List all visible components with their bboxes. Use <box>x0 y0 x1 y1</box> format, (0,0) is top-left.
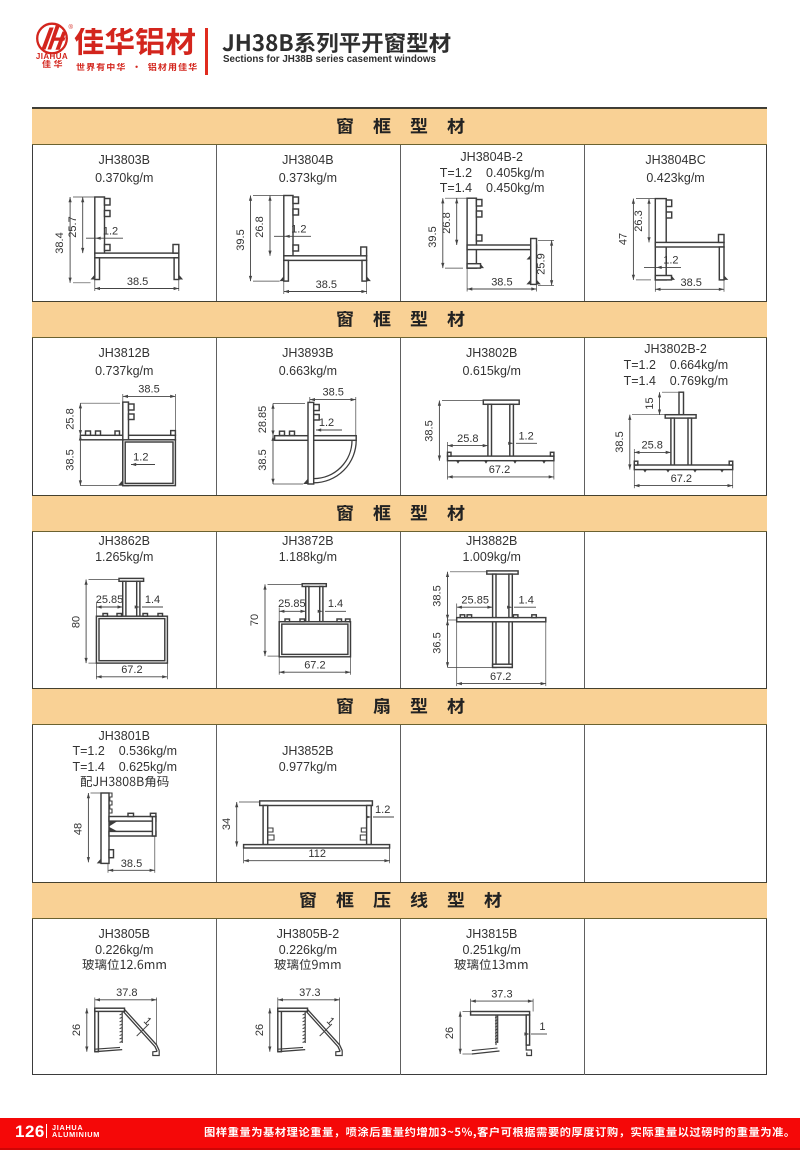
svg-text:38.4: 38.4 <box>54 232 66 253</box>
svg-text:1.2: 1.2 <box>133 452 148 464</box>
svg-text:1.2: 1.2 <box>375 804 390 816</box>
svg-text:112: 112 <box>308 848 326 860</box>
svg-text:67.2: 67.2 <box>490 670 511 682</box>
svg-text:37.8: 37.8 <box>116 987 137 999</box>
svg-text:26: 26 <box>254 1023 266 1035</box>
svg-text:38.5: 38.5 <box>64 449 76 470</box>
svg-text:70: 70 <box>249 613 261 625</box>
svg-text:38.5: 38.5 <box>491 276 512 288</box>
svg-text:26.8: 26.8 <box>254 216 266 237</box>
svg-text:37.3: 37.3 <box>299 987 320 999</box>
svg-text:39.5: 39.5 <box>235 229 247 250</box>
svg-text:38.5: 38.5 <box>680 277 701 289</box>
svg-text:38.5: 38.5 <box>120 858 141 870</box>
svg-text:1.2: 1.2 <box>518 431 533 443</box>
svg-text:25.85: 25.85 <box>278 598 306 610</box>
svg-text:38.5: 38.5 <box>138 384 159 396</box>
svg-text:67.2: 67.2 <box>670 473 691 485</box>
svg-text:67.2: 67.2 <box>121 664 142 676</box>
svg-text:39.5: 39.5 <box>427 226 439 247</box>
svg-text:67.2: 67.2 <box>489 464 510 476</box>
svg-text:38.5: 38.5 <box>613 431 625 452</box>
svg-text:67.2: 67.2 <box>304 659 325 671</box>
svg-text:1.2: 1.2 <box>291 223 306 235</box>
svg-text:26: 26 <box>70 1023 82 1035</box>
svg-text:26: 26 <box>444 1026 456 1038</box>
svg-text:25.7: 25.7 <box>66 216 78 237</box>
svg-text:1.4: 1.4 <box>328 598 343 610</box>
svg-text:80: 80 <box>70 615 82 627</box>
svg-text:47: 47 <box>617 232 629 244</box>
svg-text:15: 15 <box>643 397 655 409</box>
svg-text:1: 1 <box>539 1020 545 1032</box>
svg-text:25.8: 25.8 <box>64 408 76 429</box>
svg-text:25.85: 25.85 <box>461 594 489 606</box>
svg-text:36.5: 36.5 <box>431 632 443 653</box>
svg-text:38.5: 38.5 <box>431 585 443 606</box>
svg-text:37.3: 37.3 <box>491 988 512 1000</box>
svg-text:1.2: 1.2 <box>319 417 334 429</box>
svg-text:1.4: 1.4 <box>144 594 159 606</box>
svg-text:26.8: 26.8 <box>441 212 453 233</box>
svg-text:25.8: 25.8 <box>457 433 478 445</box>
svg-text:28.85: 28.85 <box>257 406 269 434</box>
svg-text:25.9: 25.9 <box>535 253 547 274</box>
svg-text:25.85: 25.85 <box>95 594 123 606</box>
svg-text:38.5: 38.5 <box>257 449 269 470</box>
svg-text:25.8: 25.8 <box>641 440 662 452</box>
svg-text:48: 48 <box>72 823 84 835</box>
svg-text:1.2: 1.2 <box>102 225 117 237</box>
svg-text:34: 34 <box>221 818 233 830</box>
svg-text:38.5: 38.5 <box>322 387 343 399</box>
svg-text:38.5: 38.5 <box>126 276 147 288</box>
svg-text:38.5: 38.5 <box>316 279 337 291</box>
svg-text:1.2: 1.2 <box>663 254 678 266</box>
svg-text:26.3: 26.3 <box>633 210 645 231</box>
svg-text:1.4: 1.4 <box>518 594 533 606</box>
svg-text:38.5: 38.5 <box>423 420 435 441</box>
svg-text:®: ® <box>69 24 74 31</box>
